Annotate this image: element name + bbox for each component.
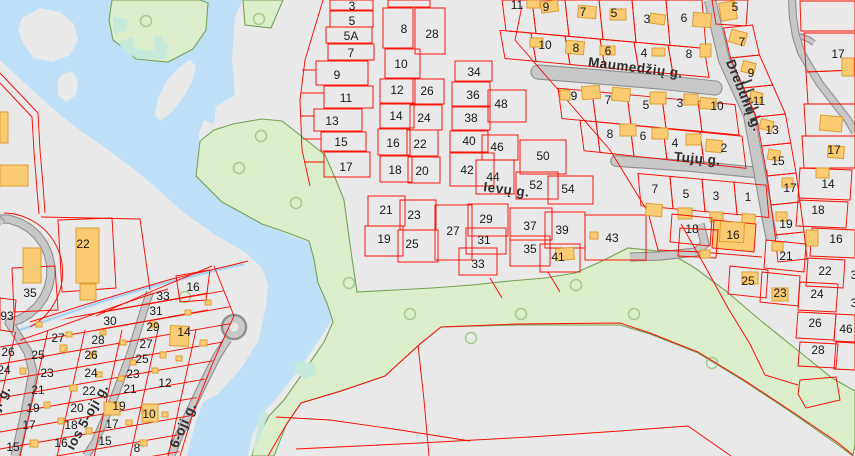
svg-text:21: 21: [379, 203, 393, 217]
svg-text:3: 3: [677, 96, 684, 110]
svg-text:24: 24: [810, 287, 824, 301]
svg-text:8: 8: [134, 441, 141, 455]
svg-text:14: 14: [821, 177, 835, 191]
svg-text:16: 16: [186, 280, 200, 294]
svg-text:12: 12: [158, 376, 172, 390]
svg-text:4: 4: [672, 136, 679, 150]
svg-text:5: 5: [349, 14, 356, 28]
svg-text:31: 31: [149, 304, 163, 318]
svg-text:48: 48: [494, 97, 508, 111]
svg-text:25: 25: [741, 274, 755, 288]
svg-text:7: 7: [348, 46, 355, 60]
svg-text:17: 17: [339, 160, 353, 174]
svg-text:26: 26: [808, 316, 822, 330]
svg-text:25: 25: [31, 348, 45, 362]
svg-text:29: 29: [479, 212, 493, 226]
svg-text:6: 6: [681, 11, 688, 25]
svg-text:3: 3: [851, 268, 855, 282]
svg-text:16: 16: [386, 136, 400, 150]
svg-text:19: 19: [26, 401, 40, 415]
svg-text:5: 5: [732, 0, 739, 14]
svg-text:16: 16: [829, 232, 843, 246]
svg-text:3: 3: [851, 296, 855, 310]
svg-text:8: 8: [686, 47, 693, 61]
svg-text:26: 26: [1, 345, 15, 359]
svg-text:6: 6: [640, 129, 647, 143]
svg-text:17: 17: [783, 181, 797, 195]
svg-text:12: 12: [390, 83, 404, 97]
svg-text:5: 5: [611, 6, 618, 20]
svg-text:17: 17: [827, 143, 841, 157]
svg-text:14: 14: [177, 325, 191, 339]
svg-text:8: 8: [401, 22, 408, 36]
svg-text:13: 13: [765, 123, 779, 137]
svg-text:22: 22: [76, 237, 90, 251]
svg-text:7: 7: [652, 182, 659, 196]
svg-text:26: 26: [84, 348, 98, 362]
svg-text:50: 50: [536, 149, 550, 163]
svg-text:46: 46: [490, 140, 504, 154]
svg-text:17: 17: [105, 417, 119, 431]
svg-text:23: 23: [773, 286, 787, 300]
svg-text:27: 27: [51, 331, 65, 345]
svg-text:24: 24: [84, 366, 98, 380]
svg-text:25: 25: [135, 352, 149, 366]
svg-text:40: 40: [462, 134, 476, 148]
svg-text:33: 33: [471, 257, 485, 271]
svg-text:9: 9: [334, 68, 341, 82]
svg-text:8: 8: [607, 127, 614, 141]
svg-text:5: 5: [683, 187, 690, 201]
svg-text:3: 3: [713, 189, 720, 203]
svg-text:11: 11: [511, 0, 524, 12]
svg-text:19: 19: [112, 399, 126, 413]
svg-text:2: 2: [721, 141, 728, 155]
svg-text:41: 41: [551, 250, 565, 264]
svg-text:22: 22: [413, 137, 427, 151]
svg-text:38: 38: [464, 111, 478, 125]
svg-text:36: 36: [466, 88, 480, 102]
svg-text:3: 3: [644, 12, 651, 26]
svg-text:34: 34: [467, 65, 481, 79]
svg-text:9: 9: [748, 66, 755, 80]
svg-text:21: 21: [31, 383, 45, 397]
svg-text:9: 9: [543, 0, 550, 14]
svg-text:5A: 5A: [344, 29, 359, 43]
svg-text:30: 30: [103, 314, 117, 328]
svg-text:13: 13: [325, 114, 339, 128]
svg-text:43: 43: [605, 231, 619, 245]
svg-text:27: 27: [446, 224, 460, 238]
svg-text:7: 7: [739, 35, 746, 49]
svg-text:15: 15: [98, 434, 112, 448]
svg-text:18: 18: [811, 203, 825, 217]
svg-text:10: 10: [538, 38, 552, 52]
svg-text:24: 24: [0, 363, 11, 377]
svg-text:1: 1: [745, 190, 752, 204]
svg-text:23: 23: [407, 208, 421, 222]
svg-text:35: 35: [23, 286, 37, 300]
svg-text:15: 15: [334, 135, 348, 149]
svg-text:5: 5: [643, 98, 650, 112]
svg-text:28: 28: [425, 27, 439, 41]
svg-text:10: 10: [142, 407, 156, 421]
svg-text:19: 19: [779, 217, 793, 231]
svg-text:15: 15: [771, 154, 785, 168]
svg-text:9: 9: [571, 89, 578, 103]
svg-text:24: 24: [417, 111, 431, 125]
svg-text:31: 31: [477, 233, 491, 247]
svg-text:18: 18: [388, 163, 402, 177]
svg-text:33: 33: [156, 289, 170, 303]
svg-text:23: 23: [126, 367, 140, 381]
svg-text:22: 22: [818, 264, 832, 278]
svg-text:28: 28: [91, 333, 105, 347]
svg-text:35: 35: [523, 242, 537, 256]
svg-text:11: 11: [340, 91, 353, 105]
svg-text:39: 39: [555, 223, 569, 237]
svg-text:26: 26: [420, 84, 434, 98]
svg-text:7: 7: [580, 5, 587, 19]
svg-text:14: 14: [389, 109, 403, 123]
svg-text:25: 25: [405, 237, 419, 251]
svg-text:52: 52: [529, 178, 543, 192]
svg-text:23: 23: [40, 366, 54, 380]
svg-text:54: 54: [561, 182, 575, 196]
svg-text:27: 27: [139, 337, 153, 351]
svg-text:93: 93: [0, 309, 14, 323]
svg-text:20: 20: [415, 164, 429, 178]
svg-text:17: 17: [831, 47, 845, 61]
svg-text:46: 46: [839, 322, 853, 336]
svg-text:28: 28: [811, 343, 825, 357]
svg-text:37: 37: [523, 219, 537, 233]
svg-text:8: 8: [573, 41, 580, 55]
svg-text:15: 15: [6, 440, 20, 454]
svg-text:16: 16: [726, 228, 740, 242]
svg-text:21: 21: [123, 382, 137, 396]
svg-text:19: 19: [377, 232, 391, 246]
svg-text:10: 10: [394, 57, 408, 71]
svg-text:29: 29: [146, 320, 160, 334]
svg-text:3: 3: [349, 0, 356, 13]
svg-text:42: 42: [460, 163, 474, 177]
svg-text:21: 21: [779, 249, 793, 263]
svg-text:17: 17: [22, 418, 36, 432]
svg-text:7: 7: [605, 93, 612, 107]
svg-text:4: 4: [641, 46, 648, 60]
svg-text:10: 10: [710, 99, 724, 113]
